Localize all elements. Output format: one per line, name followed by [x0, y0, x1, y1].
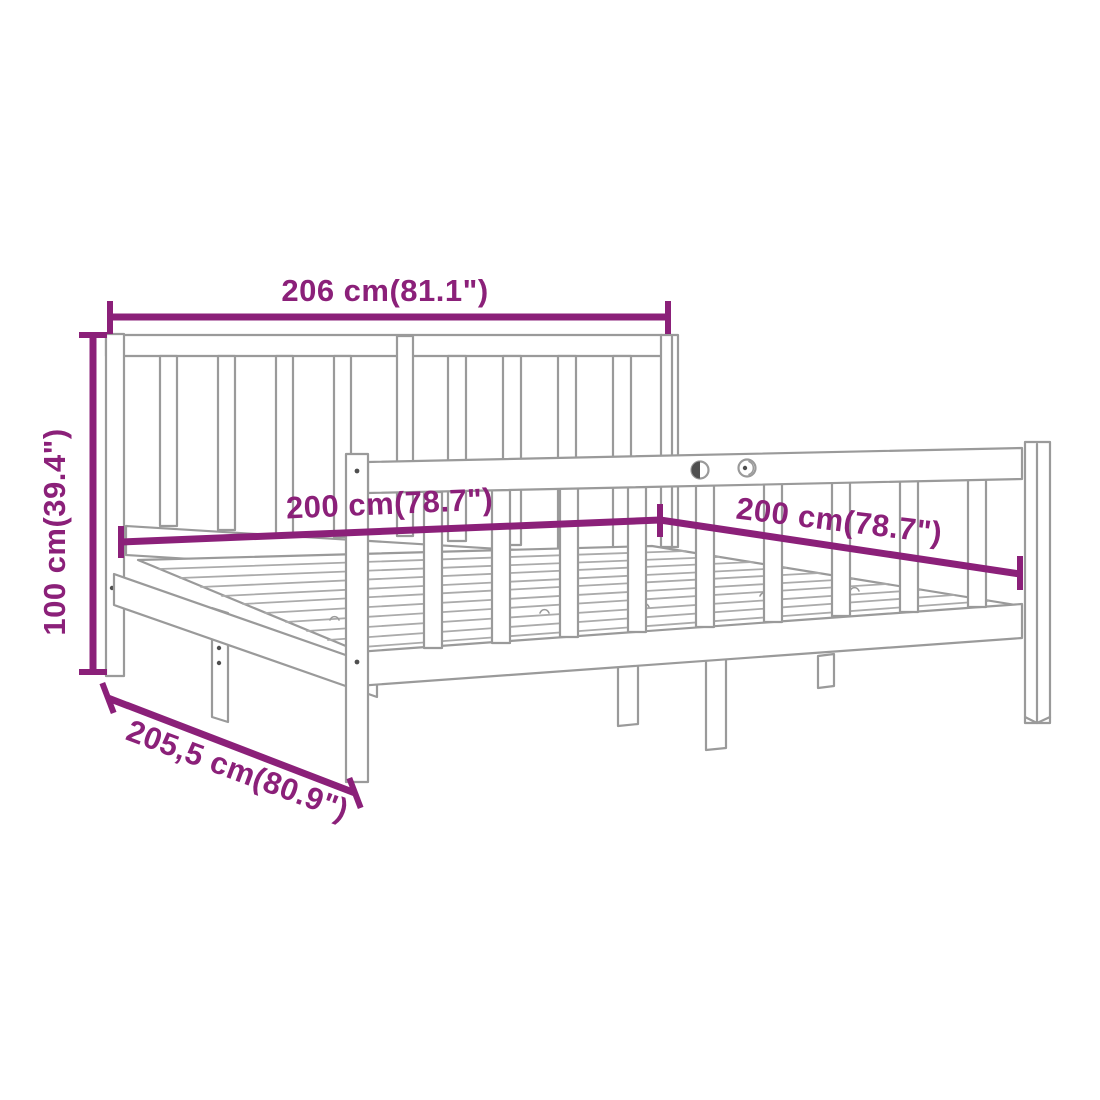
- dimension-line-overall-height: [79, 335, 107, 672]
- headboard-right-post: [661, 335, 678, 547]
- overall-depth-label: 205,5 cm(80.9"): [122, 713, 354, 828]
- diagram-canvas: 206 cm(81.1") 100 cm(39.4") 200 cm(78.7"…: [0, 0, 1100, 1100]
- headboard-top-rail: [106, 335, 662, 356]
- overall-width-label: 206 cm(81.1"): [281, 273, 488, 308]
- base-leg: [818, 654, 834, 688]
- overall-height-label: 100 cm(39.4"): [37, 428, 72, 635]
- base-leg: [706, 658, 726, 750]
- headboard-left-post: [106, 334, 124, 676]
- bed-frame-dimension-diagram: 206 cm(81.1") 100 cm(39.4") 200 cm(78.7"…: [0, 0, 1100, 1100]
- base-leg: [618, 660, 638, 726]
